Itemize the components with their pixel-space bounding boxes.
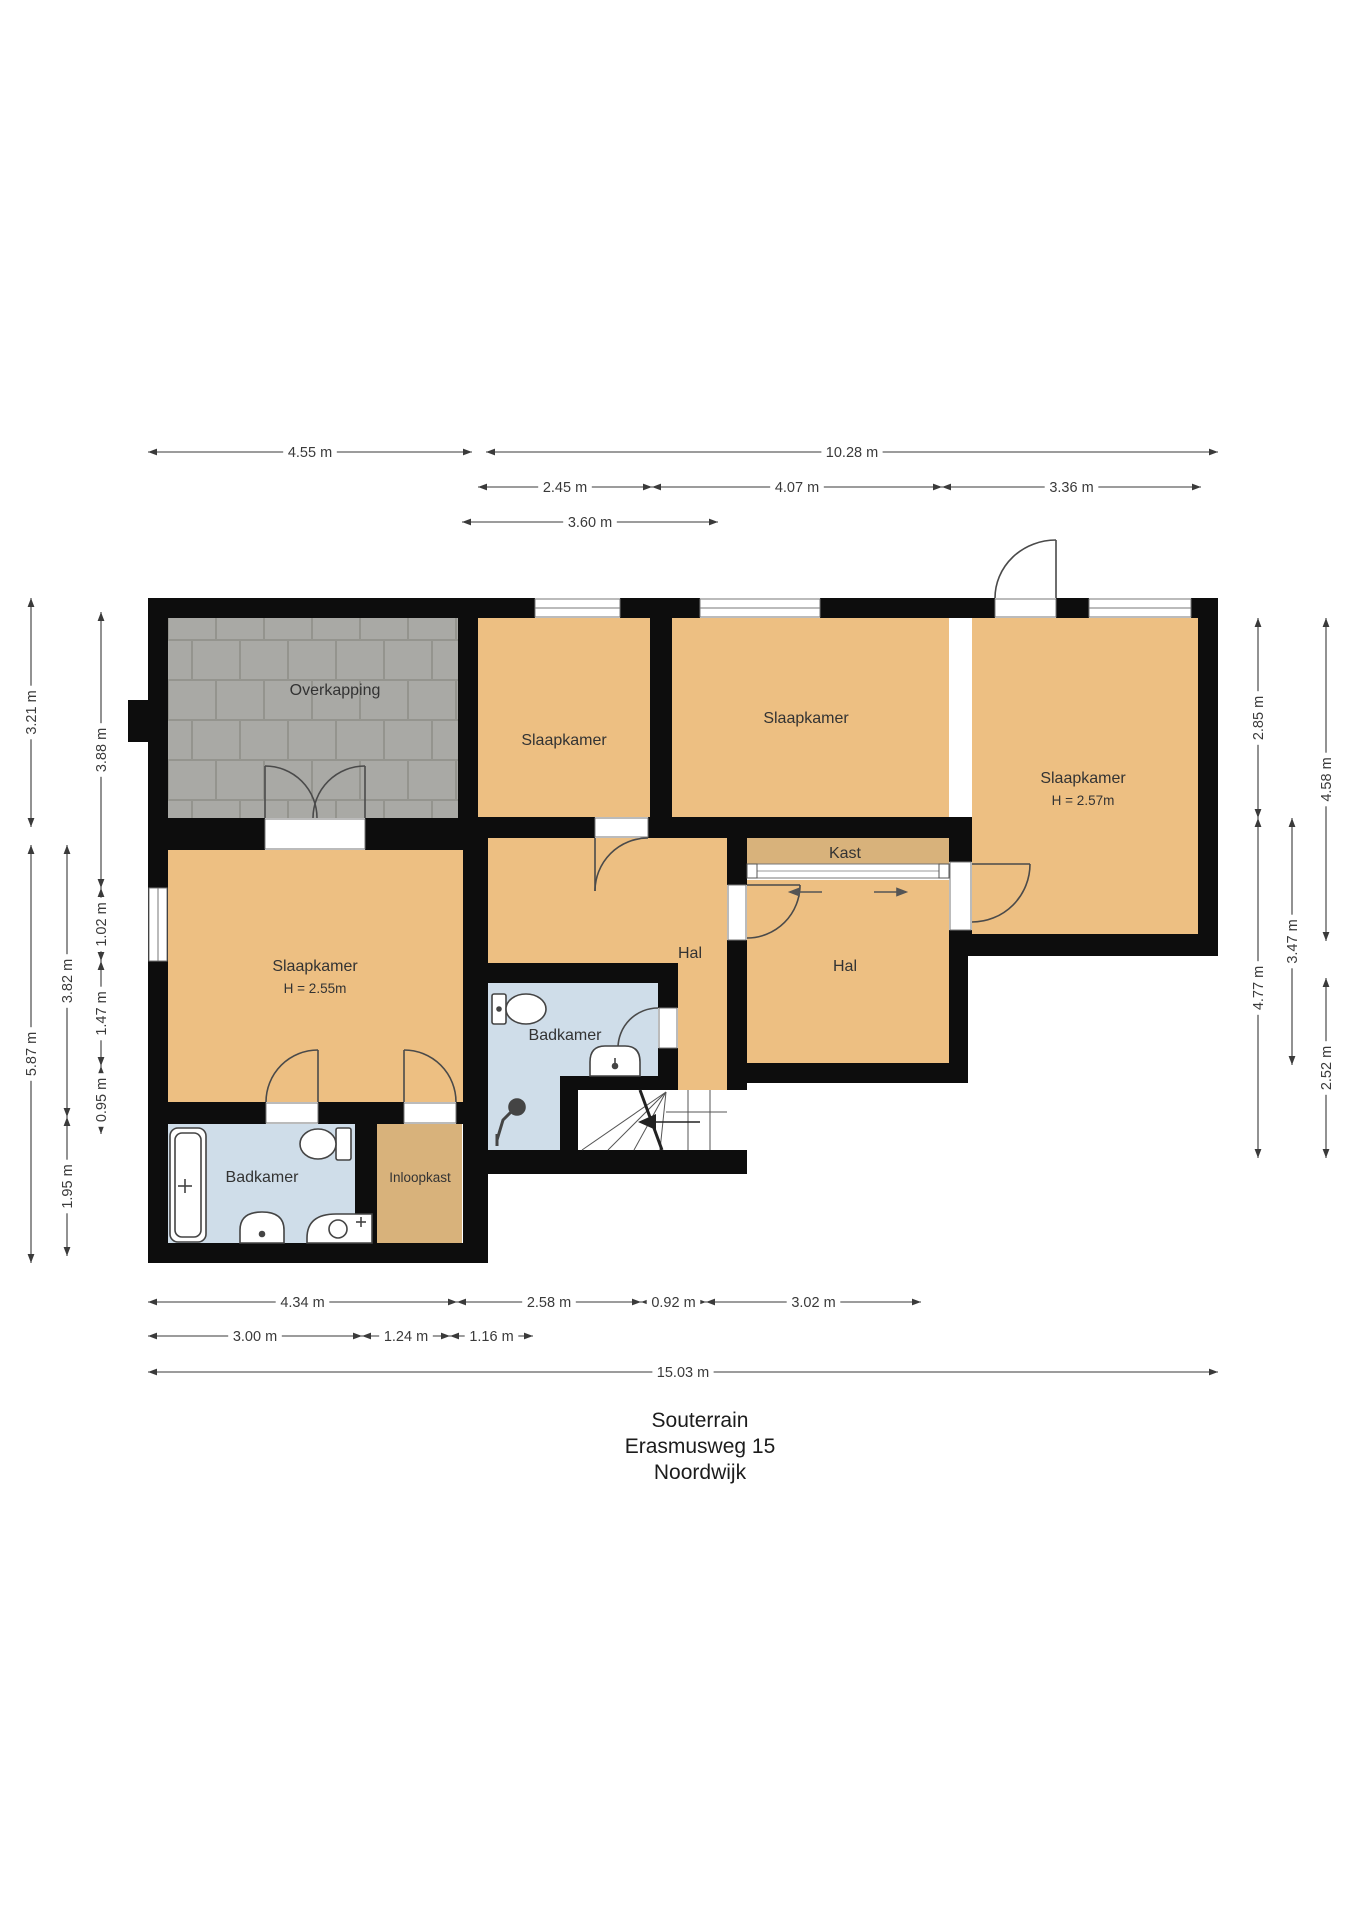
double-door-frame — [265, 819, 365, 849]
dimension-label: 3.88 m — [94, 728, 110, 772]
room-label-kast: Kast — [829, 845, 862, 862]
room-height-slaapkamer-4: H = 2.55m — [284, 981, 347, 996]
room-label-overkapping: Overkapping — [290, 682, 381, 699]
window-icon — [535, 599, 620, 617]
dimension-line: 2.58 m — [457, 1293, 641, 1311]
floorplan-page: OverkappingSlaapkamerSlaapkamerSlaapkame… — [0, 0, 1358, 1920]
dimension-line: 4.55 m — [148, 443, 472, 461]
door-frame — [728, 885, 746, 940]
window-icon — [149, 888, 167, 961]
plan-title-street: Erasmusweg 15 — [625, 1435, 776, 1458]
sink-icon — [307, 1214, 372, 1243]
dimension-label: 3.82 m — [60, 959, 76, 1003]
dimension-label: 2.52 m — [1319, 1046, 1335, 1090]
dimension-label: 4.55 m — [288, 445, 332, 461]
dimension-line: 3.88 m — [92, 612, 110, 888]
room-label-badkamer-mid: Badkamer — [529, 1027, 603, 1044]
entry-door-frame — [995, 599, 1056, 617]
dimension-line: 1.95 m — [58, 1117, 76, 1256]
dimension-line: 2.52 m — [1317, 978, 1335, 1158]
toilet-icon — [300, 1128, 351, 1160]
dimension-line: 4.07 m — [652, 478, 942, 496]
dimension-line: 10.28 m — [486, 443, 1218, 461]
dimension-line: 1.47 m — [92, 961, 110, 1066]
dimension-label: 2.45 m — [543, 480, 587, 496]
sink-icon — [240, 1212, 284, 1243]
room-label-hal-right: Hal — [833, 958, 857, 975]
slaapkamer-left-floor — [168, 850, 463, 1102]
door-frame — [266, 1103, 318, 1123]
door-frame — [404, 1103, 456, 1123]
dimension-line: 0.92 m — [641, 1293, 706, 1311]
dimension-line: 5.87 m — [22, 845, 40, 1263]
door-frame — [950, 862, 971, 930]
dimension-label: 3.02 m — [791, 1295, 835, 1311]
floorplan-canvas: OverkappingSlaapkamerSlaapkamerSlaapkame… — [0, 0, 1358, 1920]
dimension-label: 4.58 m — [1319, 757, 1335, 801]
dimension-label: 10.28 m — [826, 445, 878, 461]
dimension-label: 4.77 m — [1251, 966, 1267, 1010]
dimension-label: 3.36 m — [1049, 480, 1093, 496]
room-label-hal-mid: Hal — [678, 945, 702, 962]
dimension-line: 1.02 m — [92, 888, 110, 961]
dimension-line: 4.77 m — [1249, 818, 1267, 1158]
title-block: Souterrain Erasmusweg 15 Noordwijk — [625, 1409, 776, 1484]
plan-title-city: Noordwijk — [654, 1461, 747, 1484]
dimension-line: 3.60 m — [462, 513, 718, 531]
dimension-label: 2.85 m — [1251, 696, 1267, 740]
dimension-label: 3.60 m — [568, 515, 612, 531]
overkapping-floor — [168, 618, 458, 818]
dimension-line: 3.02 m — [706, 1293, 921, 1311]
dimension-line: 15.03 m — [148, 1363, 1218, 1381]
dimension-line: 3.21 m — [22, 598, 40, 827]
slaapkamer-top-left-floor — [478, 618, 650, 817]
bathtub-icon — [170, 1128, 206, 1242]
plan-title-floor: Souterrain — [652, 1409, 749, 1432]
dimension-line: 3.82 m — [58, 845, 76, 1117]
dimension-label: 2.58 m — [527, 1295, 571, 1311]
dimension-label: 3.21 m — [24, 690, 40, 734]
window-icon — [700, 599, 820, 617]
dimension-label: 0.95 m — [94, 1078, 110, 1122]
room-label-slaapkamer-1: Slaapkamer — [521, 732, 607, 749]
dimension-line: 1.24 m — [362, 1327, 450, 1345]
dimension-line: 3.47 m — [1283, 818, 1301, 1065]
dimension-label: 3.47 m — [1285, 919, 1301, 963]
dimension-label: 3.00 m — [233, 1329, 277, 1345]
door-frame — [595, 818, 648, 837]
dimension-line: 4.34 m — [148, 1293, 457, 1311]
dimension-label: 1.24 m — [384, 1329, 428, 1345]
room-label-inloopkast: Inloopkast — [389, 1170, 451, 1185]
room-label-slaapkamer-4: Slaapkamer — [272, 958, 358, 975]
dimension-label: 1.47 m — [94, 991, 110, 1035]
dimension-line: 0.95 m — [92, 1066, 110, 1134]
dimension-line: 1.16 m — [450, 1327, 533, 1345]
dimension-label: 15.03 m — [657, 1365, 709, 1381]
room-label-badkamer-left: Badkamer — [226, 1169, 300, 1186]
dimension-label: 1.02 m — [94, 902, 110, 946]
dimension-line: 2.85 m — [1249, 618, 1267, 818]
dimension-label: 4.34 m — [280, 1295, 324, 1311]
door-frame — [659, 1008, 677, 1048]
toilet-icon — [492, 994, 546, 1024]
window-icon — [1089, 599, 1191, 617]
entry-door-icon — [995, 540, 1056, 598]
dimension-label: 1.16 m — [469, 1329, 513, 1345]
room-height-slaapkamer-3: H = 2.57m — [1052, 793, 1115, 808]
dimension-line: 2.45 m — [478, 478, 652, 496]
dimension-label: 5.87 m — [24, 1032, 40, 1076]
pillar — [128, 700, 168, 742]
dimension-label: 0.92 m — [651, 1295, 695, 1311]
dimension-line: 3.36 m — [942, 478, 1201, 496]
sink-icon — [590, 1046, 640, 1076]
dimension-line: 3.00 m — [148, 1327, 362, 1345]
dimension-label: 4.07 m — [775, 480, 819, 496]
room-label-slaapkamer-3: Slaapkamer — [1040, 770, 1126, 787]
dimension-label: 1.95 m — [60, 1164, 76, 1208]
dimension-line: 4.58 m — [1317, 618, 1335, 941]
room-label-slaapkamer-2: Slaapkamer — [763, 710, 849, 727]
